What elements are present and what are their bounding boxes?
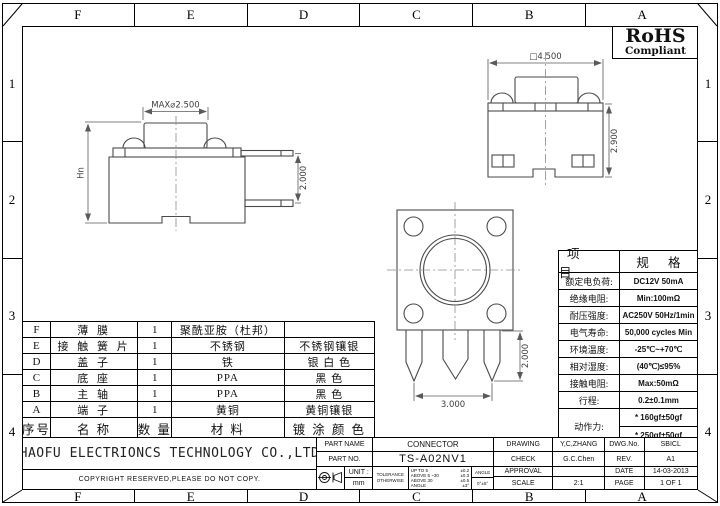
tolerance-section: TOLERANCE OTHERWISE UP TO 5±0.2ABOVE 5 ~… — [373, 467, 493, 489]
parts-table-rows: F薄 膜1聚酰亚胺（杜邦）E接 触 簧 片1不锈钢不锈钢镶银D盖 子1铁银 白 … — [23, 322, 374, 418]
date-value: 14-03-2013 — [645, 467, 697, 478]
parts-cell-name: 端 子 — [51, 402, 139, 417]
side-view-drawing: MAX⌀2.500 Hn 2.000 — [70, 92, 315, 240]
tolerance-label: TOLERANCE OTHERWISE — [373, 467, 409, 489]
dwg-no-value: SBICL — [645, 438, 697, 452]
parts-header-qty: 数 量 — [138, 418, 172, 438]
page-value: 1 OF 1 — [645, 477, 697, 489]
parts-header-material: 材 料 — [172, 418, 284, 438]
rohs-title: RoHS — [613, 27, 698, 46]
spec-table-row: 环境温度:-25℃~+70℃ — [559, 341, 697, 358]
parts-cell-name: 盖 子 — [51, 354, 139, 369]
spec-value: * 160gf±50gf — [620, 409, 697, 426]
parts-header-name: 名 称 — [51, 418, 139, 438]
doc-label-column: DWG.No. REV. DATE PAGE — [605, 438, 645, 489]
part-label-column: PART NAME PART NO. UNIT : — [317, 438, 373, 489]
parts-cell-qty: 1 — [138, 386, 172, 401]
parts-table-header: 序号 名 称 数 量 材 料 镀 涂 颜 色 — [23, 418, 374, 438]
engineering-drawing-sheet: FEDCBA FEDCBA 1234 1234 RoHS Compliant — [0, 0, 720, 506]
specification-table: 项 目 规 格 额定电负荷:DC12V 50mA绝缘电阻:Min:100mΩ耐压… — [558, 250, 698, 443]
parts-cell-material: 聚酰亚胺（杜邦） — [172, 322, 284, 337]
spec-table-row: 绝缘电阻:Min:100mΩ — [559, 290, 697, 307]
scale-label: SCALE — [494, 477, 552, 489]
spec-value-wrap: 0.2±0.1mm — [620, 392, 697, 408]
parts-table-row: C底 座1PPA黑 色 — [23, 370, 374, 386]
parts-cell-qty: 1 — [138, 402, 172, 417]
date-label: DATE — [605, 467, 644, 478]
grid-col-label: F — [22, 490, 134, 503]
doc-value-column: SBICL A1 14-03-2013 1 OF 1 — [645, 438, 697, 489]
spec-item-label: 接触电阻: — [559, 375, 620, 391]
parts-list-table: F薄 膜1聚酰亚胺（杜邦）E接 触 簧 片1不锈钢不锈钢镶银D盖 子1铁银 白 … — [22, 321, 375, 437]
parts-cell-material: 不锈钢 — [172, 338, 284, 353]
side-flange — [113, 148, 241, 157]
parts-cell-material: PPA — [172, 386, 284, 401]
grid-row-label: 3 — [698, 258, 718, 374]
side-upper-terminal — [241, 151, 293, 157]
grid-row-label: 1 — [2, 26, 22, 141]
parts-header-finish: 镀 涂 颜 色 — [285, 418, 374, 438]
grid-row-label: 4 — [2, 374, 22, 490]
parts-cell-material: PPA — [172, 370, 284, 385]
drawing-value: Y,C,ZHANG — [553, 438, 604, 452]
parts-cell-no: B — [23, 386, 51, 401]
spec-table-rows: 额定电负荷:DC12V 50mA绝缘电阻:Min:100mΩ耐压强度:AC250… — [559, 273, 697, 444]
bottom-left-pin — [406, 330, 422, 381]
grid-row-label: 1 — [698, 26, 718, 141]
projection-symbol-cell — [317, 467, 345, 489]
spec-item-label: 行程: — [559, 392, 620, 408]
unit-cell: UNIT : mm — [345, 467, 372, 489]
front-view-drawing: □4.500 2.900 — [450, 45, 630, 207]
parts-cell-qty: 1 — [138, 322, 172, 337]
spec-value: Max:50mΩ — [620, 375, 697, 391]
side-dim-terminal-pitch: 2.000 — [299, 166, 309, 190]
tolerance-range: ANGLE — [411, 483, 426, 488]
spec-item-label: 额定电负荷: — [559, 273, 620, 289]
company-name: HAOFU ELECTRIONCS TECHNOLOGY CO.,LTD — [23, 438, 316, 470]
parts-cell-no: D — [23, 354, 51, 369]
spec-item-label: 环境温度: — [559, 341, 620, 357]
bottom-right-pin — [484, 330, 500, 381]
spec-value: AC250V 50Hz/1min — [620, 307, 697, 323]
tolerance-value: ±3° — [462, 483, 469, 488]
spec-value: DC12V 50mA — [620, 273, 697, 289]
grid-row-label: 2 — [698, 141, 718, 257]
parts-cell-finish: 黄铜镶银 — [285, 402, 374, 417]
bottom-view-drawing: 3.000 2.000 — [380, 198, 532, 413]
parts-cell-finish: 不锈钢镶银 — [285, 338, 374, 353]
front-dim-height: 2.900 — [610, 129, 620, 153]
parts-cell-name: 底 座 — [51, 370, 139, 385]
unit-section: UNIT : mm — [317, 467, 372, 489]
bottom-center-pin — [443, 330, 468, 379]
scale-value: 2:1 — [553, 477, 604, 489]
rev-value: A1 — [645, 452, 697, 466]
grid-col-label: C — [359, 490, 472, 503]
spec-value-wrap: AC250V 50Hz/1min — [620, 307, 697, 323]
grid-col-label: D — [247, 3, 360, 26]
spec-value: -25℃~+70℃ — [620, 341, 697, 357]
spec-table-row: 接触电阻:Max:50mΩ — [559, 375, 697, 392]
check-label: CHECK — [494, 452, 552, 466]
unit-value: mm — [345, 478, 372, 489]
parts-table-row: A端 子1黄铜黄铜镶银 — [23, 402, 374, 418]
parts-cell-no: C — [23, 370, 51, 385]
check-value: G.C.Chen — [553, 452, 604, 466]
grid-row-label: 4 — [698, 374, 718, 490]
parts-table-row: D盖 子1铁银 白 色 — [23, 354, 374, 370]
parts-cell-material: 黄铜 — [172, 402, 284, 417]
grid-column-band-top: FEDCBA — [22, 3, 698, 26]
spec-value-wrap: DC12V 50mA — [620, 273, 697, 289]
parts-cell-finish — [285, 322, 374, 337]
spec-item-label: 绝缘电阻: — [559, 290, 620, 306]
parts-table-row: B主 轴1PPA黑 色 — [23, 386, 374, 402]
side-dim-height-label: Hn — [77, 167, 87, 179]
spec-item-label: 耐压强度: — [559, 307, 620, 323]
part-value-column: CONNECTOR TS-A02NV1 TOLERANCE OTHERWISE … — [373, 438, 494, 489]
spec-value: 50,000 cycles Min — [620, 324, 697, 340]
grid-col-label: E — [134, 3, 247, 26]
bottom-corner-circle — [487, 304, 506, 323]
approval-value — [553, 467, 604, 478]
unit-label: UNIT : — [345, 467, 372, 479]
part-no-label: PART NO. — [317, 452, 372, 466]
parts-cell-material: 铁 — [172, 354, 284, 369]
grid-row-label: 2 — [2, 141, 22, 257]
grid-col-label: B — [472, 3, 585, 26]
angle-label: ANGLE — [472, 467, 493, 479]
parts-cell-qty: 1 — [138, 354, 172, 369]
spec-value: Min:100mΩ — [620, 290, 697, 306]
bottom-dim-pin-span: 3.000 — [441, 400, 465, 410]
front-button-outline — [515, 77, 578, 103]
parts-cell-name: 薄 膜 — [51, 322, 139, 337]
front-dim-width: □4.500 — [529, 52, 561, 62]
spec-value: (40℃)≤95% — [620, 358, 697, 374]
spec-table-row: 相对湿度:(40℃)≤95% — [559, 358, 697, 375]
spec-value-wrap: -25℃~+70℃ — [620, 341, 697, 357]
title-block: HAOFU ELECTRIONCS TECHNOLOGY CO.,LTD COP… — [22, 437, 698, 490]
angle-tolerance-cell: ANGLE 0°±5° — [472, 467, 493, 489]
grid-col-label: B — [472, 490, 585, 503]
approval-value-column: Y,C,ZHANG G.C.Chen 2:1 — [553, 438, 605, 489]
copyright-notice: COPYRIGHT RESERVED,PLEASE DO NOT COPY. — [23, 470, 316, 489]
angle-value: 0°±5° — [472, 478, 493, 489]
front-right-dome — [578, 93, 600, 103]
spec-item-label: 相对湿度: — [559, 358, 620, 374]
parts-cell-no: F — [23, 322, 51, 337]
spec-item-label: 电气寿命: — [559, 324, 620, 340]
part-name-value: CONNECTOR — [373, 438, 493, 452]
bottom-corner-circle — [487, 217, 506, 236]
company-section: HAOFU ELECTRIONCS TECHNOLOGY CO.,LTD COP… — [23, 438, 317, 489]
side-button-outline — [144, 123, 207, 148]
spec-value-wrap: Min:100mΩ — [620, 290, 697, 306]
page-label: PAGE — [605, 477, 644, 489]
parts-cell-no: E — [23, 338, 51, 353]
spec-table-row: 额定电负荷:DC12V 50mA — [559, 273, 697, 290]
parts-cell-no: A — [23, 402, 51, 417]
grid-col-label: C — [359, 3, 472, 26]
grid-row-label: 3 — [2, 258, 22, 374]
parts-cell-name: 主 轴 — [51, 386, 139, 401]
parts-cell-finish: 黑 色 — [285, 370, 374, 385]
side-dim-button-diameter: MAX⌀2.500 — [151, 101, 199, 111]
spec-table-row: 行程:0.2±0.1mm — [559, 392, 697, 409]
grid-col-label: A — [585, 490, 698, 503]
parts-cell-name: 接 触 簧 片 — [51, 338, 139, 353]
bottom-corner-circle — [404, 304, 423, 323]
grid-row-band-left: 1234 — [2, 26, 22, 490]
spec-header-item: 项 目 — [559, 251, 620, 272]
side-body-outline — [109, 157, 245, 223]
tolerance-values: UP TO 5±0.2ABOVE 5 ~30±0.3ABOVE 30±0.5AN… — [409, 467, 472, 489]
parts-table-row: E接 触 簧 片1不锈钢不锈钢镶银 — [23, 338, 374, 354]
grid-col-label: A — [585, 3, 698, 26]
dwg-no-label: DWG.No. — [605, 438, 644, 452]
drawing-label: DRAWING — [494, 438, 552, 452]
parts-cell-finish: 黑 色 — [285, 386, 374, 401]
grid-col-label: E — [134, 490, 247, 503]
bottom-dim-pin-length: 2.000 — [521, 344, 531, 368]
spec-table-row: 电气寿命:50,000 cycles Min — [559, 324, 697, 341]
spec-header-spec: 规 格 — [620, 251, 697, 272]
rev-label: REV. — [605, 452, 644, 466]
parts-table-row: F薄 膜1聚酰亚胺（杜邦） — [23, 322, 374, 338]
parts-header-no: 序号 — [23, 418, 51, 438]
front-left-dome — [491, 93, 513, 103]
spec-value-wrap: 50,000 cycles Min — [620, 324, 697, 340]
approval-label: APPROVAL — [494, 467, 552, 478]
part-no-value: TS-A02NV1 — [373, 452, 493, 466]
grid-column-band-bottom: FEDCBA — [22, 490, 698, 503]
approval-label-column: DRAWING CHECK APPROVAL SCALE — [494, 438, 553, 489]
spec-value-wrap: (40℃)≤95% — [620, 358, 697, 374]
bottom-corner-circle — [404, 217, 423, 236]
third-angle-projection-icon — [318, 470, 344, 485]
spec-table-header: 项 目 规 格 — [559, 251, 697, 273]
parts-cell-qty: 1 — [138, 370, 172, 385]
side-lower-terminal — [245, 200, 293, 207]
part-name-label: PART NAME — [317, 438, 372, 452]
side-left-dome — [123, 138, 145, 148]
parts-cell-finish: 银 白 色 — [285, 354, 374, 369]
spec-value: 0.2±0.1mm — [620, 392, 697, 408]
spec-table-row: 耐压强度:AC250V 50Hz/1min — [559, 307, 697, 324]
spec-value-wrap: Max:50mΩ — [620, 375, 697, 391]
grid-row-band-right: 1234 — [698, 26, 718, 490]
tolerance-label-line2: OTHERWISE — [377, 478, 404, 484]
grid-col-label: F — [22, 3, 134, 26]
grid-col-label: D — [247, 490, 360, 503]
tolerance-row: ANGLE±3° — [411, 483, 469, 488]
parts-cell-qty: 1 — [138, 338, 172, 353]
